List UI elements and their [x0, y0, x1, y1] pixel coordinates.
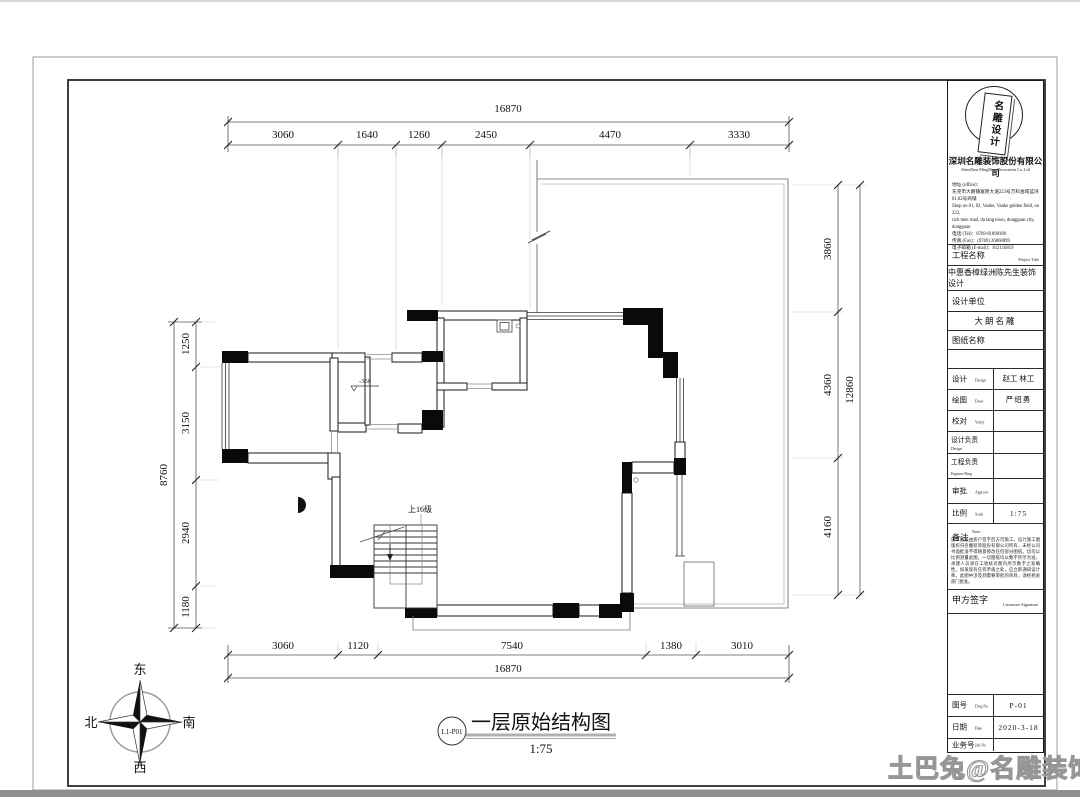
dims-bottom: 3060 1120 7540 1380 3010 16870 [224, 640, 793, 683]
row-value: 2020-3-18 [993, 716, 1043, 738]
row-value: P-01 [993, 694, 1043, 716]
design-unit-value: 大朗名雕 [948, 311, 1043, 330]
drawing-name-label-row: 图纸名称 [948, 330, 1043, 349]
dim-label: 1250 [180, 333, 192, 356]
drawing-scale-label: 1:75 [529, 741, 552, 756]
floor-drain-icon [634, 478, 638, 482]
row-value: 严绍勇 [993, 389, 1043, 410]
row-engineer-lead: 工程负责 Enginee Ring [948, 453, 1043, 478]
dim-label: 16870 [494, 103, 522, 115]
note-label-en: Note: [972, 529, 981, 534]
dim-label: 4160 [822, 516, 834, 539]
row-label-en: Date [975, 726, 982, 730]
row-label-cn: 图号 [952, 700, 967, 711]
bay-outline [684, 562, 714, 606]
door-leaf-icon [298, 497, 306, 513]
row-label-cn: 比例 [952, 508, 967, 519]
address-line: 电话 (Tel)：0769-81898188 [952, 231, 1041, 238]
drawing-ref-label: L1-P01 [442, 728, 464, 736]
dims-right: 3860 4360 4160 12860 [822, 181, 864, 599]
floor-plan-canvas: 上16级 -350 16870 3060 1640 1260 2450 4470… [0, 0, 1080, 797]
project-name: 中惠香樟绿洲陈先生装饰设计 [948, 265, 1043, 290]
drawing-sheet: 上16级 -350 16870 3060 1640 1260 2450 4470… [0, 0, 1080, 797]
row-label-cn: 审批 [952, 485, 967, 496]
row-label-en: Design [975, 378, 986, 382]
compass-south-label: 南 [182, 715, 195, 730]
drawing-name-value-row [948, 349, 1043, 368]
logo-text: 名雕设计 [986, 99, 1005, 148]
project-label-cn: 工程名称 [952, 249, 985, 261]
note-section: 备注 Note: 施工图纸由客户签字后方可施工，设计施工图版权归名雕装饰股份有限… [948, 523, 1043, 589]
dim-label: 1120 [347, 640, 369, 652]
design-unit-label-row: 设计单位 [948, 290, 1043, 311]
design-unit-label: 设计单位 [952, 295, 985, 307]
signature-label-en: Customer Signature [1003, 602, 1038, 607]
row-label-en: Dwg No [975, 704, 988, 708]
row-value: 1:75 [993, 503, 1043, 523]
drawing-title: L1-P01 一层原始结构图 1:75 [438, 711, 616, 756]
page-bottom-edge [0, 790, 1080, 797]
dim-label: 4360 [822, 374, 834, 397]
door-openings [332, 355, 493, 454]
stair-label: 上16级 [408, 504, 432, 514]
dim-label: 1640 [356, 129, 379, 141]
terrace-outline [537, 179, 788, 608]
design-unit-row: 大朗名雕 [948, 311, 1043, 330]
row-value [993, 431, 1043, 453]
row-value [993, 453, 1043, 478]
drawing-title-label: 一层原始结构图 [471, 711, 611, 734]
dims-top: 16870 3060 1640 1260 2450 4470 3330 [224, 103, 793, 156]
company-name-en: ShenZhen MingDiao Decoration Co.,Ltd [948, 167, 1043, 172]
boundary-line [528, 160, 550, 313]
row-label-en: Enginee Ring [951, 472, 972, 476]
signature-space [948, 613, 1043, 694]
row-label-cn: 绘图 [952, 394, 967, 405]
address-line: rich men road, da lang town, dongguan ci… [952, 217, 1041, 231]
dim-label: 3860 [822, 238, 834, 261]
row-scale: 比例 Scale 1:75 [948, 503, 1043, 523]
witness-lines [200, 150, 866, 658]
dim-label: 3330 [728, 129, 751, 141]
dim-label: 2940 [180, 522, 192, 545]
dim-label: 1380 [660, 640, 683, 652]
dim-label: 7540 [501, 640, 524, 652]
row-design: 设计 Design 赵工 林工 [948, 368, 1043, 389]
sink-fixture [497, 320, 520, 332]
row-verify: 校对 Verify [948, 410, 1043, 431]
row-label-en: Verify [975, 420, 985, 424]
dim-label: 4470 [599, 129, 622, 141]
row-label-cn: 校对 [952, 415, 967, 426]
row-date: 日期 Date 2020-3-18 [948, 716, 1043, 738]
row-label-en: Scale [975, 512, 983, 516]
address-line: 地址 (office)： [952, 182, 1041, 189]
address-line: 01.02号商铺 [952, 196, 1041, 203]
dim-label: 3060 [272, 640, 295, 652]
svg-text:-350: -350 [359, 378, 371, 385]
row-draw: 绘图 Draw 严绍勇 [948, 389, 1043, 410]
dim-label: 3010 [731, 640, 754, 652]
project-label-en: Project Title [1018, 257, 1039, 262]
row-label-en: Draw [975, 399, 983, 403]
staircase [360, 514, 437, 608]
project-name-row: 中惠香樟绿洲陈先生装饰设计 [948, 265, 1043, 290]
row-value [993, 410, 1043, 431]
dim-label: 3150 [180, 412, 192, 435]
compass-east-label: 东 [133, 662, 146, 677]
dim-label: 8760 [158, 464, 170, 487]
address-line: Shop no 01, 02, Vanke, Vanke golden fiel… [952, 203, 1041, 217]
dim-label: 3060 [272, 129, 295, 141]
row-approve: 审批 Approve [948, 478, 1043, 503]
plan-windows [222, 313, 685, 557]
row-label-cn: 日期 [952, 722, 967, 733]
project-title-row: 工程名称 Project Title [948, 244, 1043, 265]
address-line: 东莞市大朗镇富民大道222号万科金域蓝湾 [952, 189, 1041, 196]
dims-left: 1250 3150 2940 1180 8760 [158, 318, 202, 632]
watermark: 土巴兔@名雕装饰 [888, 749, 1080, 785]
row-label-en: Job No [975, 744, 986, 748]
row-design-lead: 设计负责 Design [948, 431, 1043, 453]
row-value: 赵工 林工 [993, 368, 1043, 389]
dim-label: 12860 [844, 376, 856, 404]
row-label-en: Approve [975, 490, 988, 494]
compass-icon: 东 南 西 北 [84, 662, 195, 775]
dim-label: 2450 [475, 129, 498, 141]
row-value [993, 478, 1043, 503]
signature-label-cn: 甲方签字 [952, 593, 988, 606]
drawing-name-label: 图纸名称 [952, 334, 985, 346]
compass-west-label: 西 [133, 760, 146, 775]
dim-label: 16870 [494, 663, 522, 675]
title-block: 名雕设计 深圳名雕装饰股份有限公司 ShenZhen MingDiao Deco… [947, 80, 1044, 753]
row-label-cn: 设计负责 [951, 434, 978, 444]
row-dwg-no: 图号 Dwg No P-01 [948, 694, 1043, 716]
compass-north-label: 北 [84, 715, 97, 730]
company-address: 地址 (office)： 东莞市大朗镇富民大道222号万科金域蓝湾 01.02号… [952, 182, 1041, 252]
note-text: 施工图纸由客户签字后方可施工，设计施工图版权归名雕装饰股份有限公司所有，未经公司… [951, 537, 1040, 585]
dim-label: 1260 [408, 129, 431, 141]
dim-label: 1180 [180, 596, 192, 618]
company-logo-icon: 名雕设计 [977, 93, 1012, 156]
page-top-edge [0, 0, 1080, 2]
row-label-cn: 工程负责 [951, 456, 978, 466]
signature-section: 甲方签字 Customer Signature [948, 589, 1043, 613]
row-label-cn: 设计 [952, 373, 967, 384]
plan-walls [248, 311, 685, 616]
row-label-en: Design [951, 447, 962, 451]
